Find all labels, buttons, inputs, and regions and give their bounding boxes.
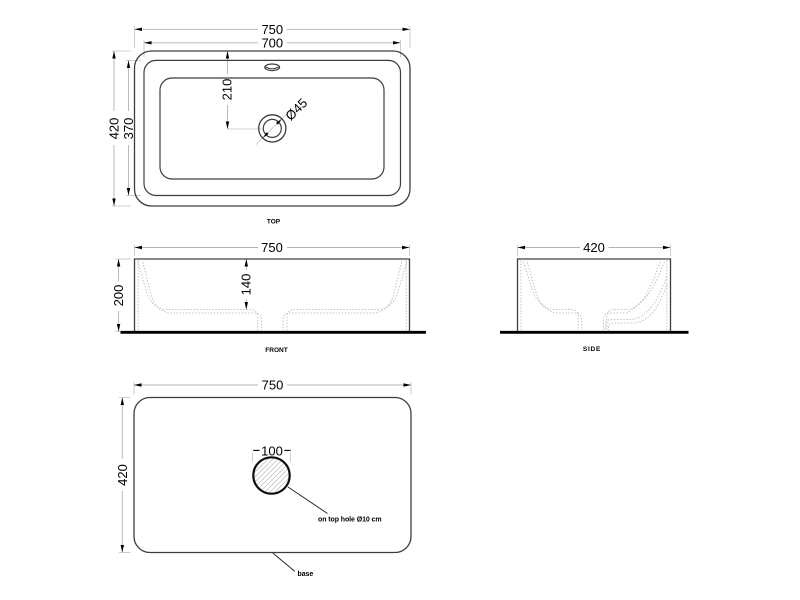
svg-text:140: 140 <box>239 274 254 296</box>
svg-text:420: 420 <box>583 240 605 255</box>
svg-text:750: 750 <box>261 240 283 255</box>
svg-text:210: 210 <box>220 79 235 101</box>
svg-text:700: 700 <box>261 35 283 50</box>
svg-text:base: base <box>298 571 314 578</box>
svg-text:750: 750 <box>262 378 284 393</box>
svg-text:420: 420 <box>107 118 122 140</box>
svg-text:100: 100 <box>261 443 283 458</box>
svg-text:Ø45: Ø45 <box>282 95 310 123</box>
svg-text:370: 370 <box>121 118 136 140</box>
svg-text:TOP: TOP <box>267 219 281 226</box>
svg-text:SIDE: SIDE <box>583 346 601 353</box>
svg-text:200: 200 <box>111 285 126 307</box>
svg-text:420: 420 <box>115 464 130 486</box>
svg-text:FRONT: FRONT <box>265 347 287 354</box>
svg-text:on top hole Ø10 cm: on top hole Ø10 cm <box>318 516 382 523</box>
